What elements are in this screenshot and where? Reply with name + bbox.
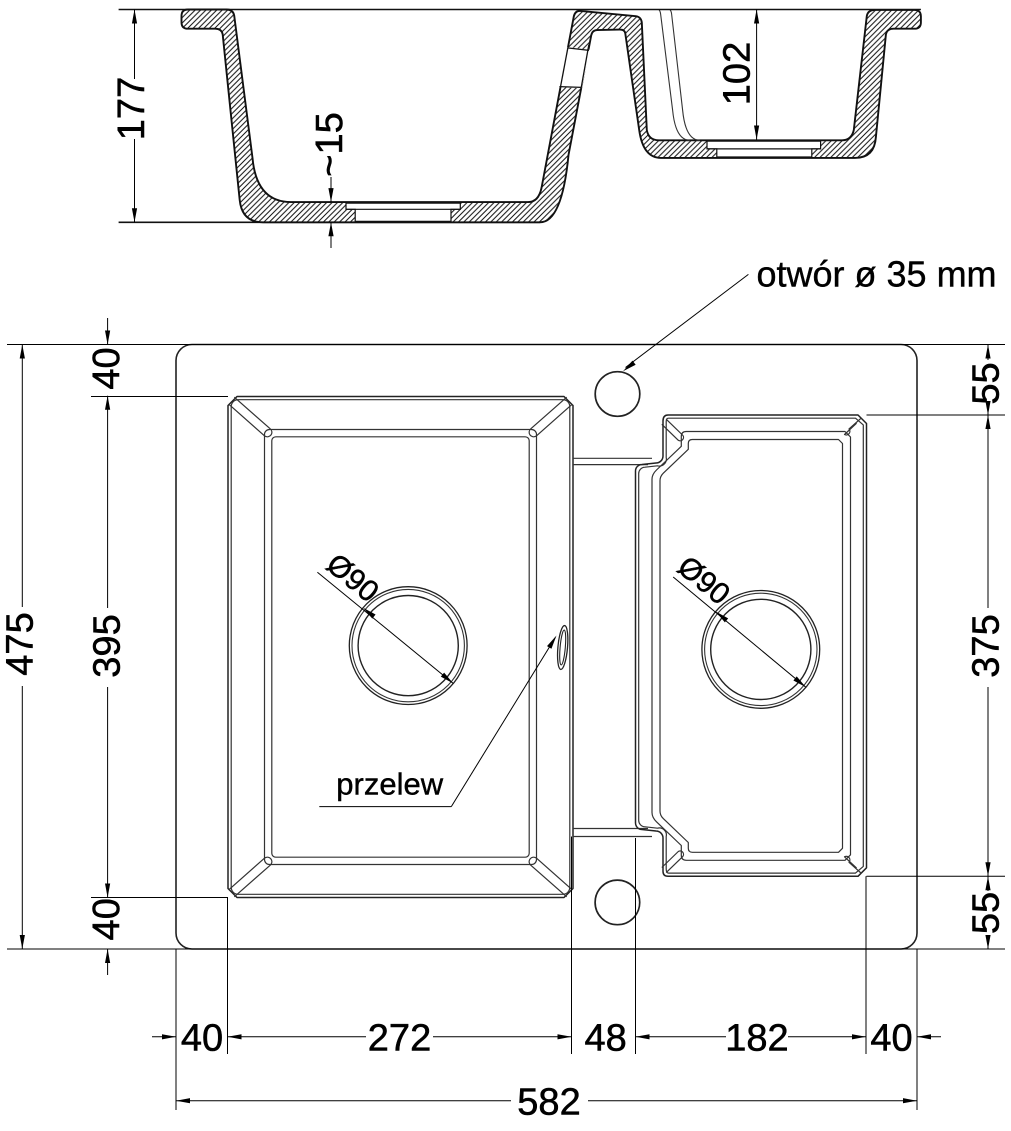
svg-text:272: 272 xyxy=(368,1018,431,1060)
svg-text:otwór ø 35 mm: otwór ø 35 mm xyxy=(757,254,997,295)
svg-text:40: 40 xyxy=(181,1018,223,1060)
svg-text:40: 40 xyxy=(86,898,128,940)
svg-text:40: 40 xyxy=(86,347,128,389)
svg-text:375: 375 xyxy=(966,614,1008,677)
svg-text:przelew: przelew xyxy=(336,767,443,802)
svg-text:475: 475 xyxy=(0,612,42,675)
svg-text:395: 395 xyxy=(87,614,129,677)
svg-text:582: 582 xyxy=(517,1081,580,1123)
svg-text:182: 182 xyxy=(725,1018,788,1060)
svg-text:177: 177 xyxy=(111,77,153,140)
svg-text:48: 48 xyxy=(584,1018,626,1060)
svg-text:~15: ~15 xyxy=(309,112,351,176)
svg-text:102: 102 xyxy=(717,42,759,105)
svg-text:55: 55 xyxy=(966,362,1008,404)
svg-text:55: 55 xyxy=(966,892,1008,934)
svg-text:40: 40 xyxy=(870,1018,912,1060)
